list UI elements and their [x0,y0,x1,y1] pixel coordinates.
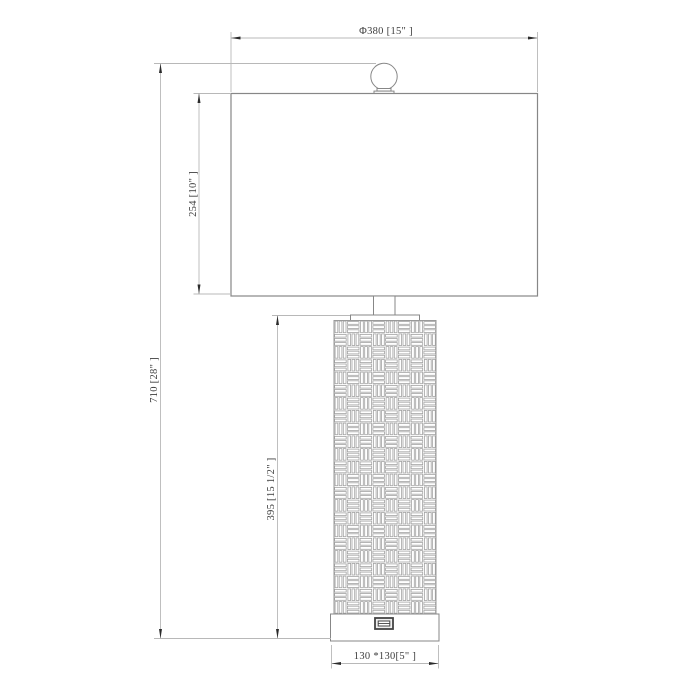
arrow-down-icon [198,285,201,295]
arrow-right-icon [528,37,538,40]
lamp-body [334,321,436,615]
shade-neck [374,296,396,315]
shade-height-label: 254 [10" ] [188,171,199,217]
shade-width-label: Φ380 [15" ] [359,26,413,37]
lamp-object [231,63,538,641]
dim-shade-height: 254 [10" ] [188,94,231,295]
body-height-label: 395 [15 1/2" ] [266,457,277,520]
lamp-technical-drawing-page: Φ380 [15" ] 710 [28" ] 254 [10" ] [0,0,700,700]
arrow-left-icon [332,662,342,665]
lamp-technical-drawing: Φ380 [15" ] 710 [28" ] 254 [10" ] [0,0,700,700]
arrow-left-icon [231,37,241,40]
overall-height-label: 710 [28" ] [149,357,160,403]
base-size-label: 130 *130[5" ] [354,651,416,662]
arrow-down-icon [276,629,279,639]
arrow-up-icon [276,316,279,326]
arrow-right-icon [429,662,439,665]
arrow-up-icon [159,64,162,74]
finial-ball [371,63,397,89]
dim-base-size: 130 *130[5" ] [332,645,439,669]
arrow-up-icon [198,94,201,104]
lamp-shade [231,94,538,297]
usb-port-icon [375,618,393,629]
body-cap-plate [351,315,420,321]
arrow-down-icon [159,629,162,639]
